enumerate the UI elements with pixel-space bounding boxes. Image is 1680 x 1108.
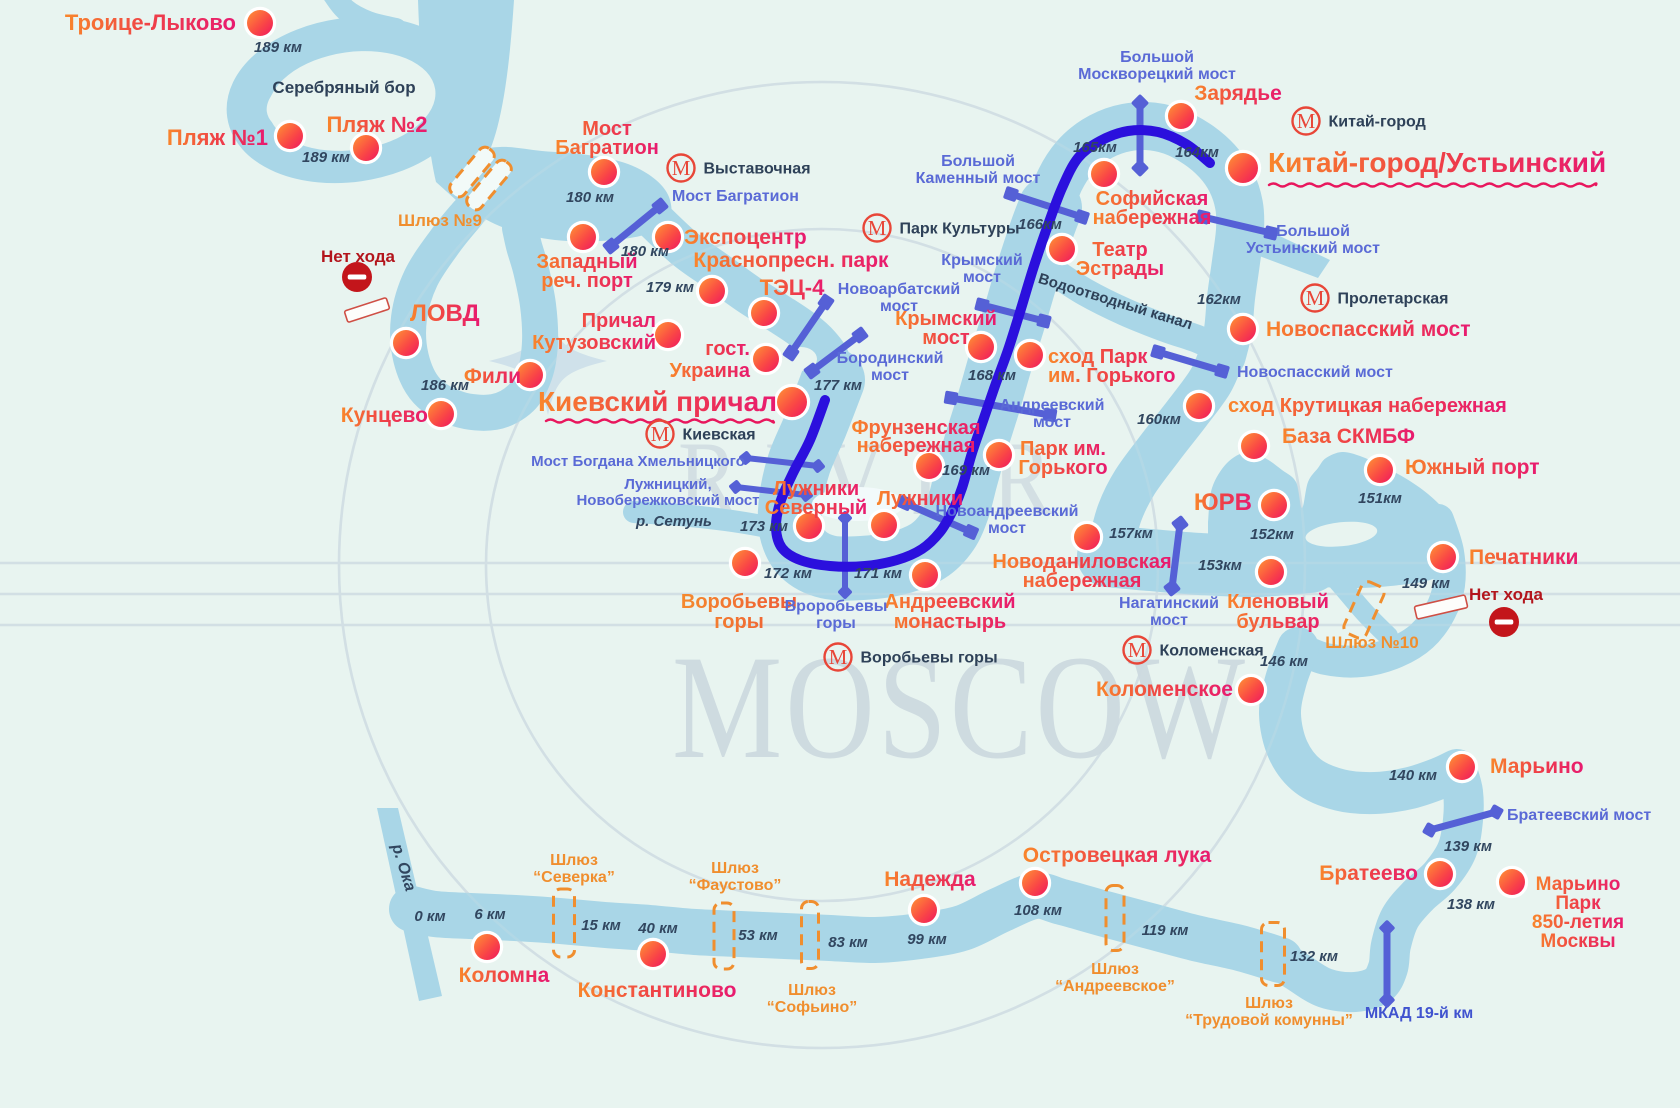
svg-text:189 км: 189 км: [302, 149, 350, 166]
svg-text:Новоспасский мост: Новоспасский мост: [1266, 318, 1471, 341]
svg-text:162км: 162км: [1197, 291, 1241, 308]
svg-text:Братеевский мост: Братеевский мост: [1507, 807, 1651, 824]
svg-text:151км: 151км: [1358, 490, 1402, 507]
svg-text:Парк им.Горького: Парк им.Горького: [1018, 438, 1107, 479]
svg-text:М: М: [1128, 638, 1147, 662]
svg-text:171 км: 171 км: [854, 565, 902, 582]
svg-text:Троице-Лыково: Троице-Лыково: [65, 10, 236, 35]
svg-text:Южный порт: Южный порт: [1405, 456, 1540, 479]
svg-text:157км: 157км: [1109, 525, 1153, 542]
svg-text:164км: 164км: [1175, 144, 1219, 161]
svg-text:53 км: 53 км: [738, 927, 778, 944]
svg-text:ТЭЦ-4: ТЭЦ-4: [760, 275, 825, 300]
svg-text:Китай-город/Устьинский: Китай-город/Устьинский: [1268, 147, 1606, 178]
svg-text:Кунцево: Кунцево: [341, 404, 428, 427]
svg-text:15 км: 15 км: [581, 917, 621, 934]
svg-text:Нет хода: Нет хода: [1469, 585, 1544, 604]
svg-text:Серебряный бор: Серебряный бор: [272, 78, 415, 97]
svg-text:Новоспасский мост: Новоспасский мост: [1237, 364, 1393, 381]
svg-text:99 км: 99 км: [907, 931, 947, 948]
svg-text:База СКМБФ: База СКМБФ: [1282, 425, 1415, 448]
svg-text:Краснопресн. парк: Краснопресн. парк: [693, 249, 889, 272]
svg-text:Кленовыйбульвар: Кленовыйбульвар: [1227, 591, 1329, 633]
svg-text:168 км: 168 км: [968, 367, 1016, 384]
svg-text:М: М: [651, 422, 670, 446]
svg-text:160км: 160км: [1137, 411, 1181, 428]
svg-text:169 км: 169 км: [942, 462, 990, 479]
svg-text:ЮРВ: ЮРВ: [1194, 489, 1252, 516]
svg-text:132 км: 132 км: [1290, 948, 1338, 965]
svg-text:186 км: 186 км: [421, 377, 469, 394]
svg-text:М: М: [1297, 109, 1316, 133]
svg-text:МКАД 19-й км: МКАД 19-й км: [1365, 1005, 1473, 1022]
svg-text:М: М: [1306, 286, 1325, 310]
svg-text:ЛОВД: ЛОВД: [410, 300, 480, 327]
svg-text:166км: 166км: [1018, 216, 1062, 233]
svg-text:Китай-город: Китай-город: [1329, 113, 1426, 130]
svg-text:108 км: 108 км: [1014, 902, 1062, 919]
svg-text:189 км: 189 км: [254, 39, 302, 56]
svg-text:Мост Богдана Хмельницкого: Мост Богдана Хмельницкого: [531, 453, 745, 470]
svg-text:Парк Культуры: Парк Культуры: [900, 220, 1020, 237]
svg-text:ЛужникиСеверный: ЛужникиСеверный: [765, 478, 867, 519]
svg-text:173 км: 173 км: [740, 518, 788, 535]
svg-text:Марьино: Марьино: [1490, 755, 1584, 778]
svg-text:138 км: 138 км: [1447, 896, 1495, 913]
svg-text:Воробьевы горы: Воробьевы горы: [861, 649, 998, 666]
svg-text:Фрунзенскаянабережная: Фрунзенскаянабережная: [851, 417, 980, 457]
svg-text:180 км: 180 км: [566, 189, 614, 206]
svg-text:Шлюз №10: Шлюз №10: [1325, 633, 1418, 652]
svg-text:180 км: 180 км: [621, 243, 669, 260]
svg-text:152км: 152км: [1250, 526, 1294, 543]
svg-text:119 км: 119 км: [1142, 922, 1189, 939]
svg-text:0 км: 0 км: [414, 908, 445, 925]
svg-text:172 км: 172 км: [764, 565, 812, 582]
svg-text:140 км: 140 км: [1389, 767, 1437, 784]
svg-text:Зарядье: Зарядье: [1194, 82, 1282, 105]
svg-text:Коломенское: Коломенское: [1096, 678, 1233, 701]
svg-text:40 км: 40 км: [637, 920, 678, 937]
svg-text:М: М: [829, 645, 848, 669]
svg-text:Коломна: Коломна: [459, 964, 550, 987]
svg-text:Пляж №2: Пляж №2: [326, 112, 427, 137]
svg-text:М: М: [672, 156, 691, 180]
svg-text:Выставочная: Выставочная: [704, 160, 811, 177]
svg-text:Братеево: Братеево: [1319, 862, 1418, 885]
svg-text:153км: 153км: [1198, 557, 1242, 574]
svg-text:Островецкая лука: Островецкая лука: [1023, 844, 1212, 867]
svg-text:Пляж №1: Пляж №1: [167, 125, 268, 150]
svg-text:6 км: 6 км: [474, 906, 505, 923]
svg-text:Константиново: Константиново: [578, 979, 737, 1002]
svg-text:Нет хода: Нет хода: [321, 247, 396, 266]
svg-text:Андреевскиймонастырь: Андреевскиймонастырь: [884, 591, 1015, 633]
svg-text:р. Сетунь: р. Сетунь: [635, 513, 712, 530]
svg-text:МарьиноПарк850-летияМосквы: МарьиноПарк850-летияМосквы: [1532, 874, 1624, 952]
svg-text:Киевская: Киевская: [683, 426, 756, 443]
svg-text:Софийскаянабережная: Софийскаянабережная: [1093, 188, 1212, 229]
svg-text:179 км: 179 км: [646, 279, 694, 296]
svg-text:Коломенская: Коломенская: [1160, 642, 1264, 659]
svg-text:Киевский причал: Киевский причал: [538, 386, 777, 417]
svg-text:сход Крутицкая набережная: сход Крутицкая набережная: [1228, 395, 1507, 417]
svg-text:165км: 165км: [1073, 139, 1117, 156]
svg-text:Экспоцентр: Экспоцентр: [684, 226, 807, 249]
svg-text:Надежда: Надежда: [884, 868, 976, 891]
svg-text:83 км: 83 км: [828, 934, 868, 951]
svg-text:Пролетарская: Пролетарская: [1338, 290, 1449, 307]
svg-text:Мост Багратион: Мост Багратион: [672, 188, 799, 205]
svg-text:Печатники: Печатники: [1469, 546, 1578, 569]
svg-text:149 км: 149 км: [1402, 575, 1450, 592]
svg-text:146 км: 146 км: [1260, 653, 1308, 670]
svg-text:177 км: 177 км: [814, 377, 862, 394]
svg-text:Шлюз №9: Шлюз №9: [398, 211, 482, 230]
svg-text:139 км: 139 км: [1444, 838, 1492, 855]
svg-text:Фили: Фили: [464, 365, 521, 388]
svg-text:М: М: [868, 216, 887, 240]
